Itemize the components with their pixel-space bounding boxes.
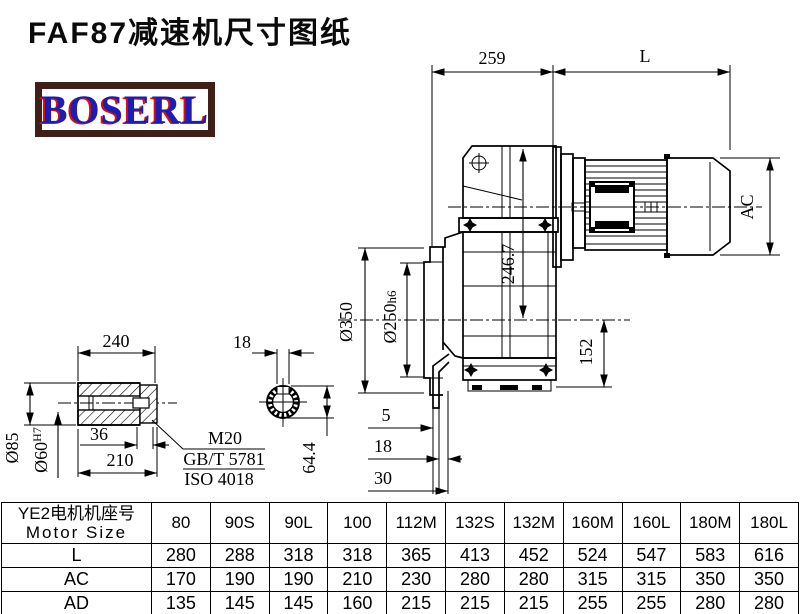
cell: 315 [563, 568, 622, 592]
dim-240-label: 240 [103, 331, 130, 351]
cell: 255 [563, 592, 622, 614]
col-header: 132S [446, 503, 505, 544]
cell: 215 [446, 592, 505, 614]
cell: 190 [210, 568, 269, 592]
cell: 288 [210, 544, 269, 568]
cell: 280 [681, 592, 740, 614]
cell: 583 [681, 544, 740, 568]
table-header-row: YE2电机机座号 Motor Size 80 90S 90L 100 112M … [2, 503, 799, 544]
col-header: 112M [387, 503, 446, 544]
cell: 350 [681, 568, 740, 592]
table-row-AD: AD 135 145 145 160 215 215 215 255 255 2… [2, 592, 799, 614]
cell: 524 [563, 544, 622, 568]
centerlines [58, 207, 762, 427]
cell: 315 [622, 568, 681, 592]
output-flange [424, 232, 463, 494]
cell: 170 [152, 568, 211, 592]
dim-152-label: 152 [576, 339, 596, 366]
cell: 255 [622, 592, 681, 614]
dim-644-label: 64.4 [299, 442, 319, 474]
dim-L-label: L [640, 46, 651, 66]
drawing-page: FAF87减速机尺寸图纸 BOSERL [0, 0, 800, 614]
dim-30-label: 30 [374, 468, 392, 488]
table-row-AC: AC 170 190 190 210 230 280 280 315 315 3… [2, 568, 799, 592]
technical-drawing: 259 L [0, 0, 800, 502]
dim-2467-label: 246.7 [498, 244, 518, 285]
cell: 280 [446, 568, 505, 592]
col-header: 80 [152, 503, 211, 544]
motor-size-table: YE2电机机座号 Motor Size 80 90S 90L 100 112M … [1, 502, 799, 614]
dim-250h6: Ø250h6 [380, 263, 424, 377]
cell: 230 [387, 568, 446, 592]
col-header: 90L [269, 503, 328, 544]
col-header: 180L [740, 503, 799, 544]
cell: 413 [446, 544, 505, 568]
dim-210-label: 210 [107, 450, 134, 470]
col-header: 160L [622, 503, 681, 544]
dim-259-label: 259 [479, 48, 506, 68]
dim-350-label: Ø350 [336, 302, 356, 342]
table-header-cell: YE2电机机座号 Motor Size [2, 503, 152, 544]
cell: 215 [504, 592, 563, 614]
cell: 547 [622, 544, 681, 568]
cell: 616 [740, 544, 799, 568]
cell: 280 [740, 592, 799, 614]
dim-60H7-label: Ø60H7 [30, 427, 51, 473]
dim-250h6-label: Ø250h6 [380, 290, 400, 344]
dim-36-label: 36 [90, 424, 108, 444]
dim-152: 152 [556, 320, 612, 387]
dim-AC-label: AC [737, 194, 757, 219]
col-header: 100 [328, 503, 387, 544]
dim-18-key-label: 18 [233, 332, 251, 352]
cell: 280 [504, 568, 563, 592]
cell: 190 [269, 568, 328, 592]
col-header: 132M [504, 503, 563, 544]
cell: 145 [269, 592, 328, 614]
cell: 318 [269, 544, 328, 568]
header-en: Motor Size [2, 523, 151, 542]
shaft-section-view: 240 36 210 Ø85 Ø60H7 M20 GB/T 5 [2, 331, 265, 489]
row-label: L [2, 544, 152, 568]
header-cn: YE2电机机座号 [2, 504, 151, 523]
cell: 365 [387, 544, 446, 568]
cell: 135 [152, 592, 211, 614]
dim-18-label: 18 [374, 436, 392, 456]
col-header: 180M [681, 503, 740, 544]
col-header: 160M [563, 503, 622, 544]
row-label: AC [2, 568, 152, 592]
standard-iso-label: ISO 4018 [184, 469, 254, 489]
standard-gbt-label: GB/T 5781 [183, 449, 264, 469]
table-row-L: L 280 288 318 318 365 413 452 524 547 58… [2, 544, 799, 568]
row-label: AD [2, 592, 152, 614]
cell: 452 [504, 544, 563, 568]
thread-label: M20 [208, 428, 242, 448]
cell: 280 [152, 544, 211, 568]
cell: 318 [328, 544, 387, 568]
cell: 160 [328, 592, 387, 614]
dim-AC: AC [720, 158, 780, 255]
dim-85-label: Ø85 [2, 433, 22, 464]
col-header: 90S [210, 503, 269, 544]
cell: 350 [740, 568, 799, 592]
cell: 215 [387, 592, 446, 614]
dim-5-label: 5 [382, 405, 391, 425]
cell: 145 [210, 592, 269, 614]
cell: 210 [328, 568, 387, 592]
